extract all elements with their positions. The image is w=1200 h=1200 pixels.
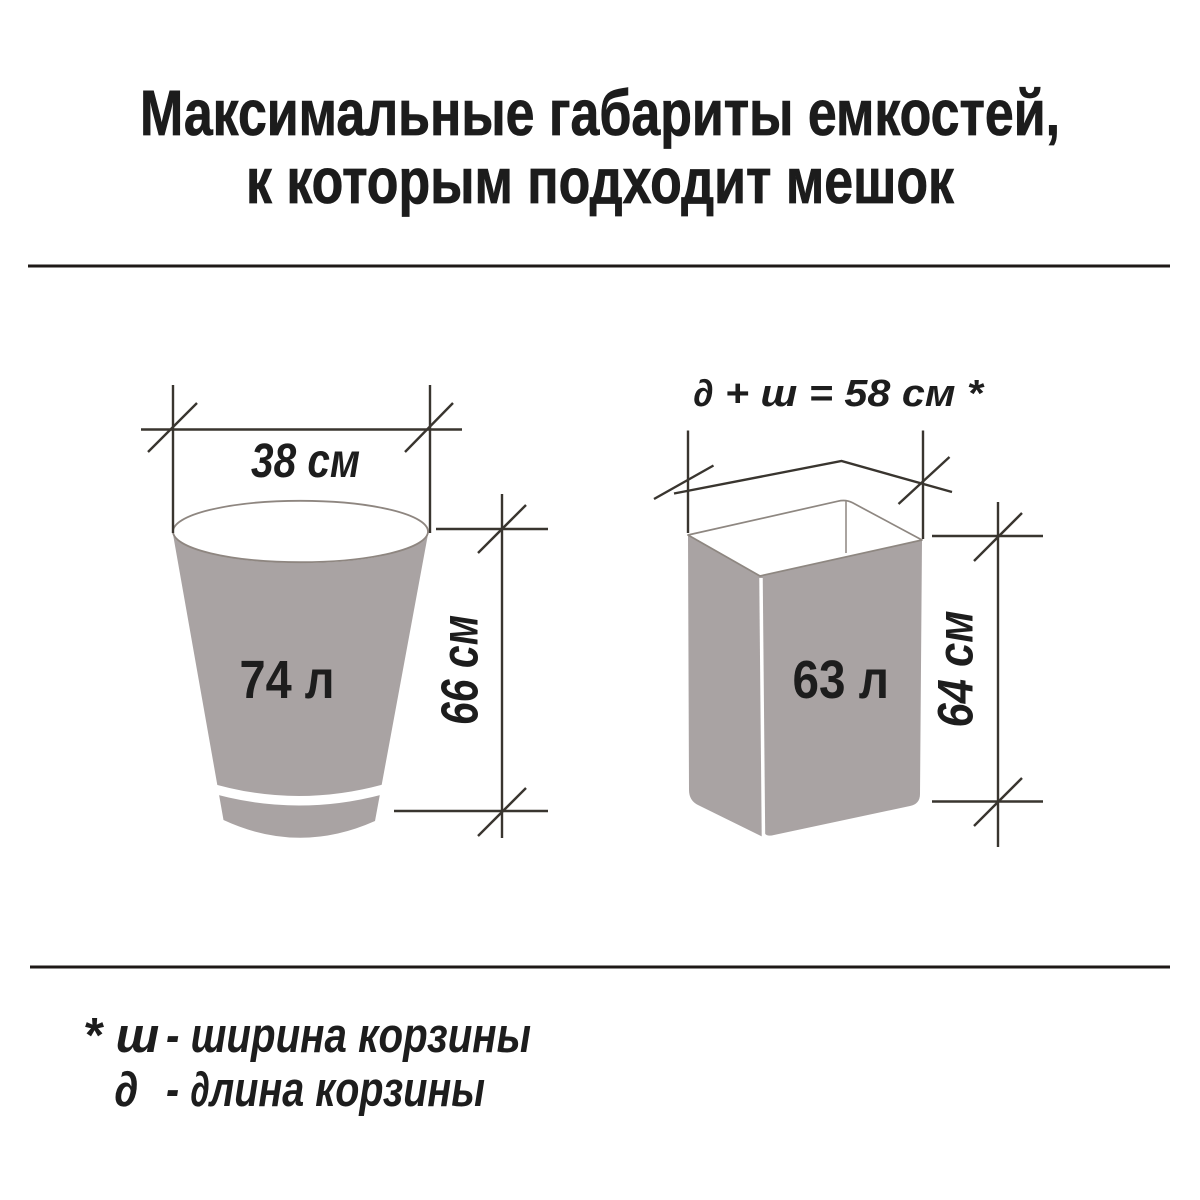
svg-text:63 л: 63 л — [793, 650, 890, 710]
svg-text:38 см: 38 см — [251, 435, 360, 488]
svg-text:- ∂лина корзины: - ∂лина корзины — [166, 1063, 485, 1117]
svg-text:Максимальные габариты емкостей: Максимальные габариты емкостей, — [140, 77, 1060, 149]
svg-text:66 см: 66 см — [432, 615, 490, 725]
svg-text:* ш: * ш — [83, 1009, 159, 1063]
svg-text:∂ + ш = 58 см *: ∂ + ш = 58 см * — [693, 373, 985, 415]
svg-text:∂: ∂ — [114, 1063, 138, 1117]
svg-text:74 л: 74 л — [240, 650, 335, 710]
svg-text:64 см: 64 см — [928, 610, 984, 727]
svg-text:к которым подходит мешок: к которым подходит мешок — [246, 145, 955, 217]
svg-text:- ширина корзины: - ширина корзины — [166, 1009, 531, 1063]
